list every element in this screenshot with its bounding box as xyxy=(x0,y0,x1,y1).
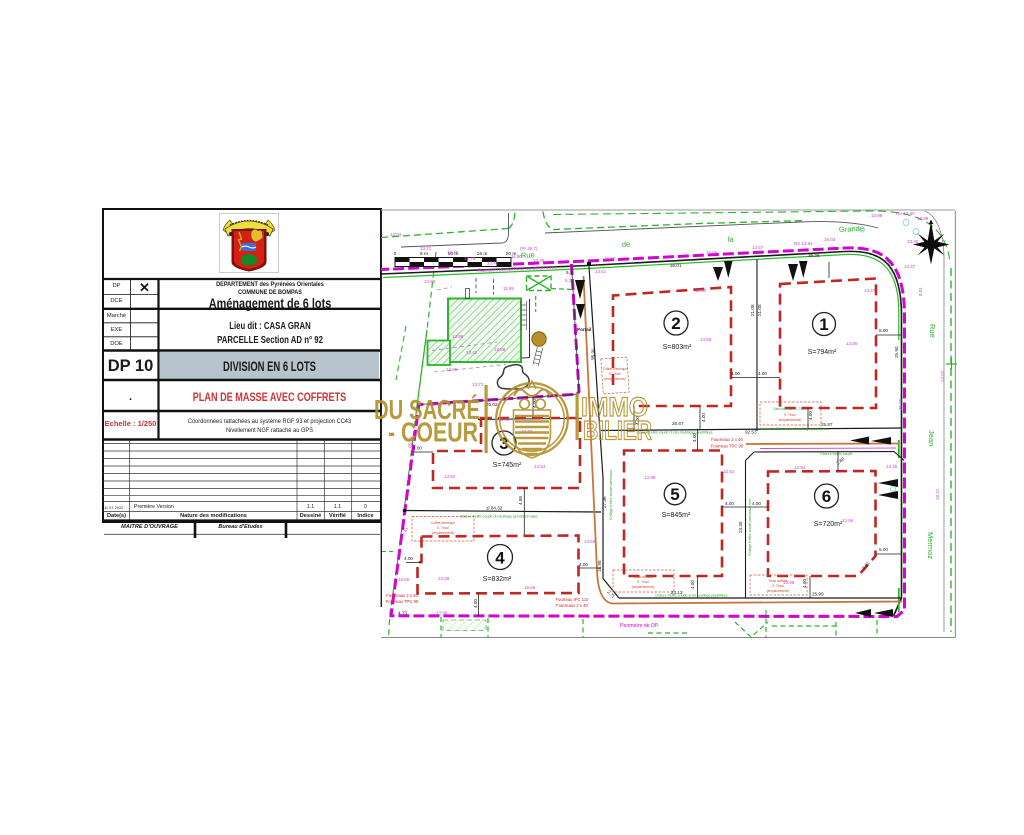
svg-text:Grillage treillis soudé pannea: Grillage treillis soudé panneaux vert xyxy=(748,499,752,556)
svg-text:Cloture treillis soudé et lin: Cloture treillis soudé et lin feuillage … xyxy=(655,594,728,598)
svg-text:25.99: 25.99 xyxy=(812,592,824,597)
svg-text:13.56: 13.56 xyxy=(846,341,858,346)
svg-text:13.61: 13.61 xyxy=(595,269,607,274)
svg-text:Fourreaux 2 x 40: Fourreaux 2 x 40 xyxy=(386,593,418,598)
svg-text:13.94: 13.94 xyxy=(794,465,806,470)
svg-text:13.46: 13.46 xyxy=(447,250,459,255)
svg-text:13.67: 13.67 xyxy=(752,245,764,250)
svg-text:4.73: 4.73 xyxy=(398,611,407,616)
svg-text:Cloture treillis soudé du feui: Cloture treillis soudé du feuillage pers… xyxy=(460,515,538,519)
svg-text:8.01: 8.01 xyxy=(918,287,923,296)
svg-text:4.00: 4.00 xyxy=(725,501,734,506)
svg-text:2.81: 2.81 xyxy=(861,560,871,570)
svg-text:Fourreau IPC 110: Fourreau IPC 110 xyxy=(556,597,590,602)
svg-text:- COEUR: - COEUR xyxy=(388,417,478,448)
svg-text:6: 6 xyxy=(822,487,831,506)
svg-text:13.98: 13.98 xyxy=(917,216,929,221)
svg-text:4.00: 4.00 xyxy=(701,413,706,422)
svg-text:Fourreaux 2 x 40: Fourreaux 2 x 40 xyxy=(711,437,743,442)
svg-text:13.40: 13.40 xyxy=(907,239,919,244)
svg-text:Nature treillis soudé et feuil: Nature treillis soudé et feuillage plast… xyxy=(760,427,827,431)
svg-text:18.21: 18.21 xyxy=(935,488,940,500)
svg-text:2.80: 2.80 xyxy=(835,456,845,466)
svg-text:5.00: 5.00 xyxy=(879,328,888,333)
svg-text:13.98: 13.98 xyxy=(871,213,883,218)
svg-text:13.40: 13.40 xyxy=(487,261,499,266)
svg-text:26.67: 26.67 xyxy=(672,421,684,426)
svg-text:25.90: 25.90 xyxy=(894,346,899,358)
svg-text:13.60: 13.60 xyxy=(604,256,616,261)
svg-text:21.08: 21.08 xyxy=(757,304,762,316)
svg-text:16.03: 16.03 xyxy=(824,237,836,242)
svg-text:S. Técul: S. Técul xyxy=(437,526,449,530)
svg-text:2.71: 2.71 xyxy=(606,589,616,599)
svg-text:(emplacement): (emplacement) xyxy=(604,377,625,381)
svg-text:13.98: 13.98 xyxy=(436,611,448,616)
svg-text:12.96: 12.96 xyxy=(446,367,458,372)
svg-text:Portail: Portail xyxy=(577,327,591,332)
svg-text:8.07: 8.07 xyxy=(883,259,893,269)
svg-text:de: de xyxy=(622,240,631,249)
svg-text:Deux coffrets: Deux coffrets xyxy=(634,575,653,579)
svg-text:5: 5 xyxy=(670,485,679,504)
svg-text:15 m: 15 m xyxy=(477,251,488,257)
svg-text:(emplacements): (emplacements) xyxy=(432,531,455,535)
svg-text:13.52: 13.52 xyxy=(940,370,945,382)
svg-text:13.46: 13.46 xyxy=(886,464,898,469)
svg-text:S. Técul: S. Técul xyxy=(784,413,796,417)
svg-text:4.00: 4.00 xyxy=(752,501,761,506)
svg-text:13.54: 13.54 xyxy=(534,464,546,469)
svg-text:13.86: 13.86 xyxy=(424,279,436,284)
svg-text:13.42: 13.42 xyxy=(466,350,478,355)
svg-text:13.88: 13.88 xyxy=(494,347,506,352)
svg-text:(emplacements): (emplacements) xyxy=(632,585,655,589)
svg-text:Deux coffrets / S. Técul: Deux coffrets / S. Técul xyxy=(773,407,806,411)
svg-text:15.56: 15.56 xyxy=(524,585,536,590)
svg-text:26.02: 26.02 xyxy=(486,402,498,407)
svg-text:13.04: 13.04 xyxy=(390,232,402,237)
svg-text:2: 2 xyxy=(671,314,680,333)
svg-text:13.98: 13.98 xyxy=(452,334,464,339)
svg-text:13.56: 13.56 xyxy=(584,539,596,544)
svg-text:Coffret électrique: Coffret électrique xyxy=(431,521,455,525)
svg-text:13.60: 13.60 xyxy=(398,577,410,582)
svg-text:13.94: 13.94 xyxy=(444,474,456,479)
svg-text:5 m: 5 m xyxy=(420,251,428,257)
svg-text:S. Técul: S. Técul xyxy=(637,580,649,584)
svg-text:S=803m²: S=803m² xyxy=(663,344,692,351)
svg-text:Cloture treillis soudé: Cloture treillis soudé xyxy=(820,452,853,456)
svg-text:Perimetre de DP: Perimetre de DP xyxy=(620,623,659,629)
svg-text:4: 4 xyxy=(495,549,505,568)
svg-text:4.00: 4.00 xyxy=(808,411,813,420)
svg-text:35.26: 35.26 xyxy=(808,253,820,258)
svg-text:11.90: 11.90 xyxy=(511,254,522,259)
svg-text:Jean: Jean xyxy=(927,430,936,446)
svg-text:5.00: 5.00 xyxy=(879,547,888,552)
svg-text:26.01: 26.01 xyxy=(670,263,682,268)
svg-text:15.66: 15.66 xyxy=(706,250,718,255)
svg-text:Grande: Grande xyxy=(839,224,864,234)
svg-text:la: la xyxy=(728,235,735,244)
svg-text:±l.84.32: ±l.84.32 xyxy=(486,506,503,511)
svg-text:4.00: 4.00 xyxy=(579,562,588,567)
svg-text:Fourreau TPC 90: Fourreau TPC 90 xyxy=(386,599,419,604)
svg-text:13.58: 13.58 xyxy=(438,576,450,581)
svg-text:13.75: 13.75 xyxy=(464,256,476,261)
svg-text:S=720m²: S=720m² xyxy=(814,521,843,528)
svg-text:BILIER: BILIER xyxy=(583,416,652,446)
svg-text:(emplacements): (emplacements) xyxy=(779,418,802,422)
svg-text:5.30: 5.30 xyxy=(565,278,574,283)
svg-text:24.35: 24.35 xyxy=(738,521,743,533)
svg-text:4.00: 4.00 xyxy=(690,580,695,589)
svg-text:21.08: 21.08 xyxy=(750,304,755,316)
svg-text:(Pr 49.7): (Pr 49.7) xyxy=(520,246,538,251)
svg-text:95.95: 95.95 xyxy=(590,348,596,360)
svg-text:4.00: 4.00 xyxy=(404,556,413,561)
svg-text:S=745m²: S=745m² xyxy=(493,462,522,469)
svg-text:(emplacements): (emplacements) xyxy=(767,589,790,593)
svg-text:7.41: 7.41 xyxy=(402,526,409,536)
svg-text:13.56: 13.56 xyxy=(842,518,854,523)
svg-text:Mermoz: Mermoz xyxy=(926,532,935,559)
svg-text:16.98: 16.98 xyxy=(597,560,602,572)
svg-text:S=845m²: S=845m² xyxy=(662,512,691,519)
svg-text:Rue: Rue xyxy=(928,324,937,338)
svg-text:1: 1 xyxy=(819,315,828,334)
svg-text:11.98: 11.98 xyxy=(503,286,514,291)
svg-text:11.98: 11.98 xyxy=(695,288,706,293)
svg-text:S=832m²: S=832m² xyxy=(483,576,512,583)
svg-text:RV 13.40: RV 13.40 xyxy=(896,211,915,216)
svg-text:S. Técul: S. Técul xyxy=(609,372,621,376)
svg-text:Fourreau TPC 90: Fourreau TPC 90 xyxy=(711,444,744,449)
svg-text:4.00: 4.00 xyxy=(802,579,807,588)
svg-text:27.36: 27.36 xyxy=(602,496,607,508)
svg-text:13.47: 13.47 xyxy=(864,288,876,293)
svg-text:13.58: 13.58 xyxy=(700,337,712,342)
svg-text:Coffret électrique: Coffret électrique xyxy=(603,367,627,371)
svg-text:0: 0 xyxy=(394,251,397,257)
svg-text:4.00: 4.00 xyxy=(473,599,478,608)
svg-text:13.98: 13.98 xyxy=(644,475,656,480)
svg-text:4.88: 4.88 xyxy=(518,496,523,505)
svg-text:S=794m²: S=794m² xyxy=(808,349,837,356)
svg-text:13.52: 13.52 xyxy=(723,469,735,474)
svg-text:20.90: 20.90 xyxy=(898,398,903,410)
svg-text:5.3: 5.3 xyxy=(566,270,573,275)
svg-text:13.21: 13.21 xyxy=(420,246,432,251)
svg-text:13.46: 13.46 xyxy=(533,258,545,263)
svg-text:13.98: 13.98 xyxy=(783,580,795,585)
svg-text:13.47: 13.47 xyxy=(904,264,916,269)
svg-text:Grillage treillis soudé pannea: Grillage treillis soudé panneaux xyxy=(609,470,613,520)
svg-text:4.00: 4.00 xyxy=(731,371,740,376)
svg-text:RV 13.94: RV 13.94 xyxy=(794,241,813,246)
svg-text:4.00: 4.00 xyxy=(758,371,767,376)
svg-text:13.73: 13.73 xyxy=(472,382,484,387)
svg-text:92.53: 92.53 xyxy=(745,430,757,435)
svg-text:Fourreaux 2 x 40: Fourreaux 2 x 40 xyxy=(556,603,588,608)
